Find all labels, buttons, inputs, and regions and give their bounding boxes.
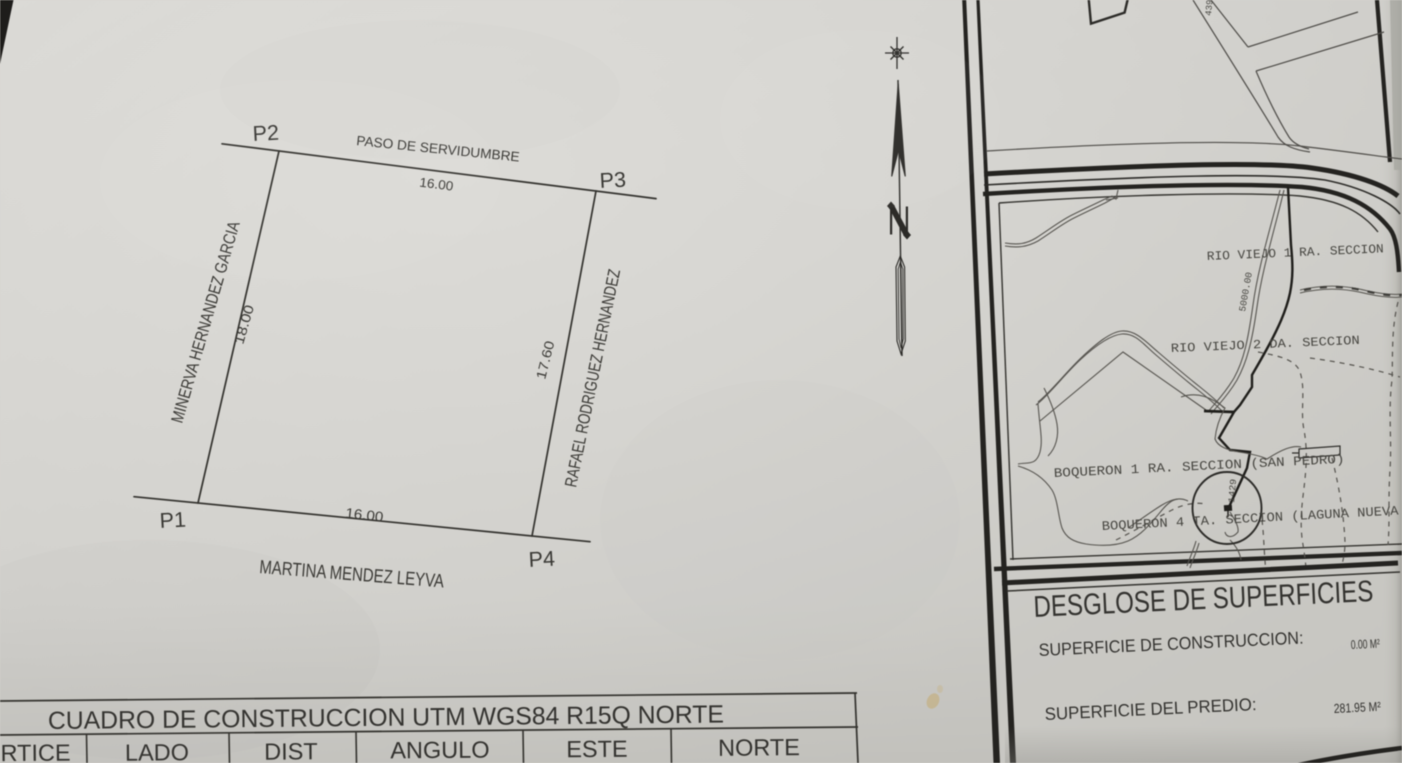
svg-text:439: 439 (1204, 0, 1215, 16)
svg-text:P4: P4 (528, 547, 556, 572)
svg-text:P3: P3 (599, 168, 627, 193)
svg-text:1429: 1429 (1227, 478, 1239, 503)
svg-text:ESTE: ESTE (566, 736, 628, 763)
svg-text:ANGULO: ANGULO (390, 737, 489, 763)
svg-text:0.00 M²: 0.00 M² (1350, 637, 1380, 652)
svg-text:NORTE: NORTE (718, 734, 800, 761)
svg-text:P1: P1 (159, 508, 187, 533)
svg-text:281.95 M²: 281.95 M² (1333, 699, 1381, 716)
